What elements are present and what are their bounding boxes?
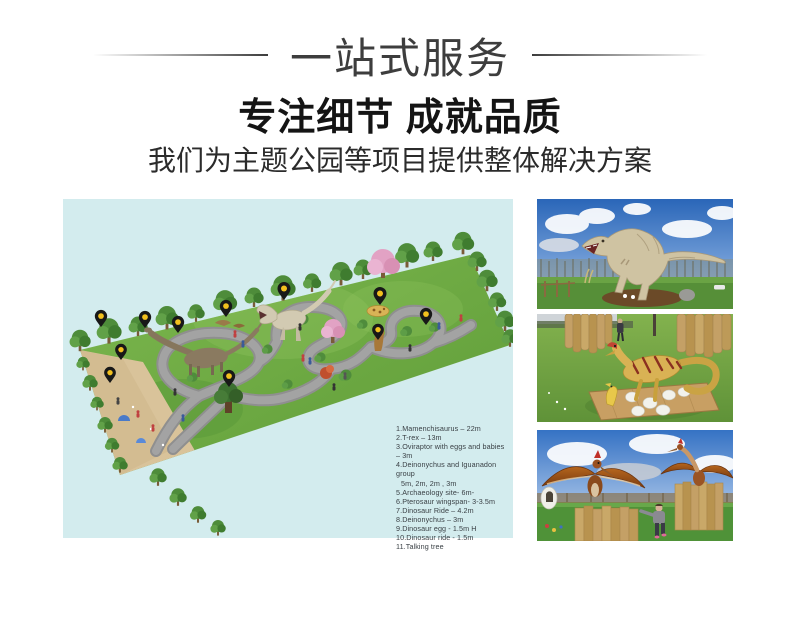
park-plan-image: 1.Mamenchisaurus – 22m 2.T-rex – 13m 3.O… [63,199,513,538]
distant-car [714,285,725,290]
photo-pterosaurs [537,430,733,541]
photo-trex [537,199,733,309]
egg-hut [541,487,557,509]
raptor-photo-illustration [537,314,733,422]
headline: 专注细节 成就品质 [0,86,800,141]
legend-line: 2.T-rex – 13m [396,433,510,442]
legend-line: 6.Pterosaur wingspan- 3-3.5m [396,497,510,506]
legend-line: 3.Oviraptor with eggs and babies – 3m [396,442,510,460]
palisade-left [565,314,612,353]
legend-line: 10.Dinosaur ride - 1.5m [396,533,510,542]
banner-title: 一站式服务 [290,25,510,86]
post [653,314,656,336]
trex-photo-illustration [537,199,733,309]
oviraptor-nest [367,306,389,317]
promo-page: 一站式服务 专注细节 成就品质 我们为主题公园等项目提供整体解决方案 [0,0,800,626]
banner-line-left [93,54,268,56]
banner: 一站式服务 [0,30,800,80]
legend-line: 1.Mamenchisaurus – 22m [396,424,510,433]
pterosaur-photo-illustration [537,430,733,541]
park-legend: 1.Mamenchisaurus – 22m 2.T-rex – 13m 3.O… [396,424,510,551]
legend-line: 5m, 2m, 2m , 3m [396,479,510,488]
rock [679,289,695,301]
legend-line: 11.Talking tree [396,542,510,551]
banner-line-right [532,54,707,56]
stand-right [675,482,723,530]
stand-left [575,506,638,541]
legend-line: 5.Archaeology site- 6m- [396,488,510,497]
photo-raptor-eggs [537,314,733,422]
legend-line: 8.Deinonychus – 3m [396,515,510,524]
subheadline: 我们为主题公园等项目提供整体解决方案 [0,139,800,179]
legend-line: 9.Dinosaur egg - 1.5m H [396,524,510,533]
legend-line: 7.Dinosaur Ride – 4.2m [396,506,510,515]
legend-line: 4.Deinonychus and Iguanadon group [396,460,510,478]
